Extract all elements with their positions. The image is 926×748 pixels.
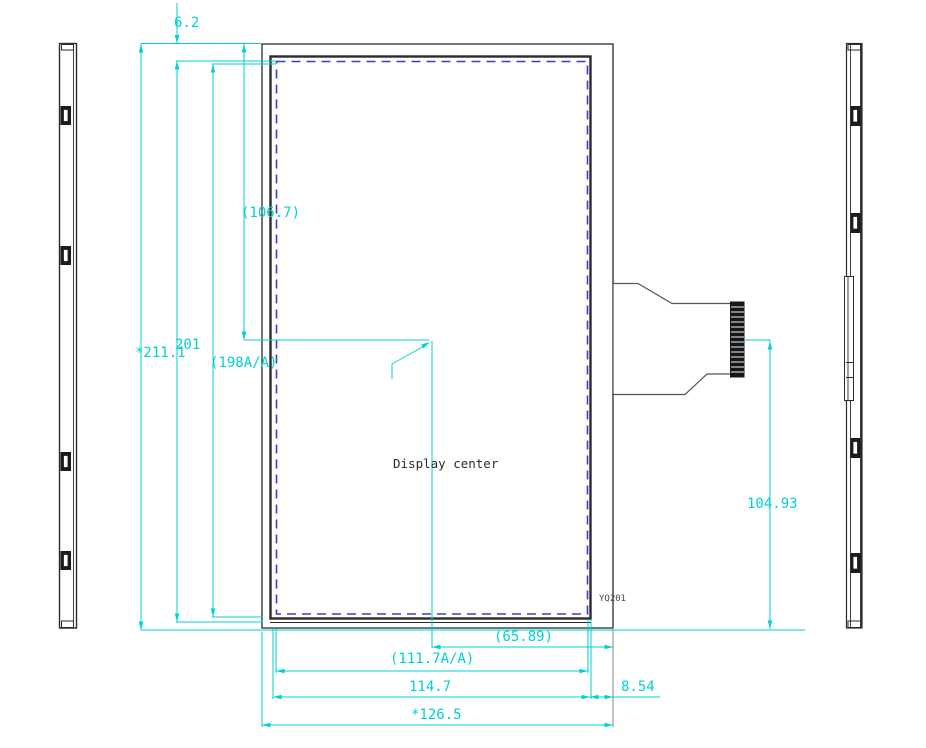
mounting-clip [61,452,72,471]
panel-outer-frame [262,44,613,628]
dim-label-active-height: (198A/A) [210,356,277,370]
fpc-outline [614,284,731,395]
left-side-view [60,44,77,629]
mounting-clip [851,213,861,233]
part-code-label: YQ201 [599,595,626,604]
dim-label-right-offset: 8.54 [621,680,655,694]
mounting-clip [61,246,72,265]
dim-label-center-height: (106.7) [241,206,300,220]
dim-label-glass-width: 114.7 [409,680,451,694]
technical-drawing-canvas: 6.2 (106.7) *211.1 201 (198A/A) 104.93 (… [0,0,926,748]
display-center-label: Display center [393,458,498,471]
dim-label-outline-height: 201 [175,338,200,352]
fpc-zif-connector [730,302,745,378]
front-view [262,44,613,628]
drawing-lines [0,0,926,748]
mounting-clip [851,438,861,458]
dim-label-active-width: (111.7A/A) [390,652,474,666]
mounting-clip [61,551,72,570]
dim-label-overall-width: *126.5 [411,708,462,722]
fpc-fold-side-profile [845,277,854,401]
mounting-clip [61,106,72,125]
fpc-cable [614,284,745,395]
mounting-clip [851,553,861,573]
right-side-view [845,44,863,629]
dim-label-connector-center: 104.93 [747,497,798,511]
dim-label-center-to-right: (65.89) [494,630,553,644]
mounting-clip [851,106,861,126]
dim-label-top-offset: 6.2 [174,16,199,30]
